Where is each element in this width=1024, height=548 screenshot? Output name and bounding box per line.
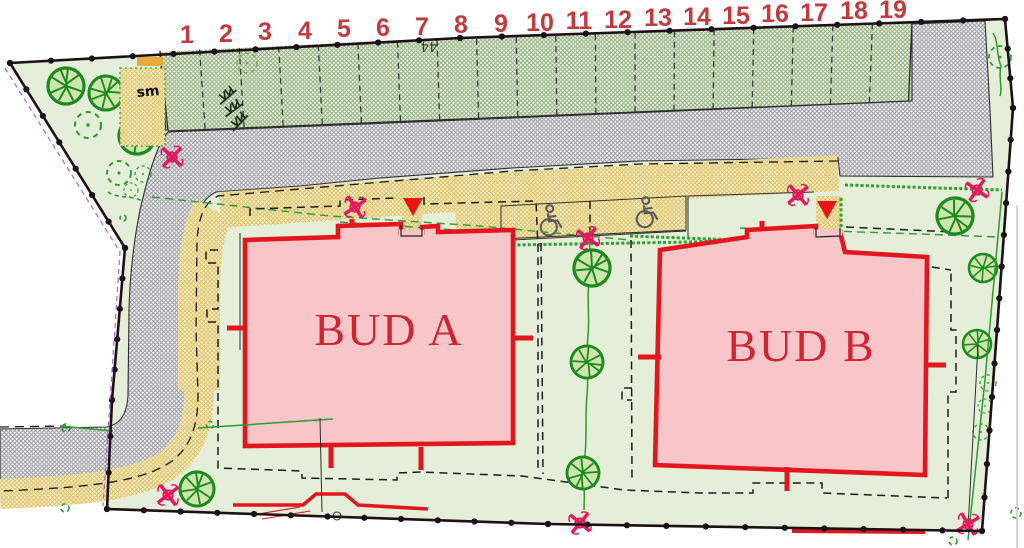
stall-number: 18 bbox=[840, 0, 868, 25]
stall-number: 4 bbox=[298, 17, 312, 45]
boundary-point bbox=[1005, 168, 1011, 174]
boundary-point bbox=[960, 17, 966, 23]
boundary-point bbox=[117, 306, 123, 312]
boundary-point bbox=[48, 58, 54, 64]
building-a: BUD A bbox=[227, 219, 533, 470]
boundary-point bbox=[981, 494, 987, 500]
boundary-point bbox=[104, 506, 110, 512]
boundary-point bbox=[119, 275, 125, 281]
boundary-point bbox=[324, 513, 330, 519]
boundary-point bbox=[984, 461, 990, 467]
boundary-point bbox=[1010, 105, 1016, 111]
boundary-point bbox=[122, 245, 128, 251]
stall-number: 11 bbox=[566, 7, 593, 35]
boundary-point bbox=[7, 60, 13, 66]
stall-number: 7 bbox=[415, 13, 429, 41]
boundary-point bbox=[792, 23, 798, 29]
stall-number: 9 bbox=[494, 10, 508, 38]
boundary-point bbox=[361, 515, 367, 521]
boundary-point bbox=[821, 525, 827, 531]
boundary-point bbox=[435, 517, 441, 523]
building-b: BUD B bbox=[638, 221, 946, 491]
stall-number: 8 bbox=[454, 11, 468, 39]
boundary-point bbox=[288, 512, 294, 518]
boundary-point bbox=[177, 508, 183, 514]
site-plan-canvas: BUD A BUD B bbox=[0, 0, 1024, 548]
boundary-point bbox=[171, 51, 177, 57]
boundary-point bbox=[106, 219, 112, 225]
boundary-point bbox=[861, 526, 867, 532]
boundary-point bbox=[1001, 232, 1007, 238]
boundary-point bbox=[584, 522, 590, 528]
boundary-point bbox=[918, 19, 924, 25]
stall-number: 5 bbox=[337, 15, 351, 43]
boundary-point bbox=[471, 518, 477, 524]
tree-icon bbox=[48, 68, 84, 104]
stall-number: 2 bbox=[219, 20, 233, 48]
stall-number: 16 bbox=[761, 0, 789, 28]
boundary-point bbox=[989, 394, 995, 400]
boundary-point bbox=[1007, 75, 1013, 81]
boundary-point bbox=[251, 511, 257, 517]
boundary-point bbox=[994, 327, 1000, 333]
stall-number: 10 bbox=[526, 9, 554, 37]
boundary-point bbox=[999, 264, 1005, 270]
boundary-point bbox=[1005, 46, 1011, 52]
boundary-point bbox=[23, 86, 29, 92]
boundary-point bbox=[986, 427, 992, 433]
stall-number: 13 bbox=[644, 4, 672, 32]
boundary-point bbox=[130, 53, 136, 59]
boundary-point bbox=[663, 523, 669, 529]
stall-number: 17 bbox=[800, 0, 828, 27]
boundary-point bbox=[211, 49, 217, 55]
boundary-point bbox=[89, 55, 95, 61]
building-b-label: BUD B bbox=[726, 320, 875, 371]
boundary-point bbox=[141, 507, 147, 513]
boundary-point bbox=[508, 520, 514, 526]
adjacent-parcel-label: 44 bbox=[421, 38, 438, 53]
boundary-point bbox=[106, 470, 112, 476]
sm-area: sm bbox=[120, 57, 165, 146]
boundary-point bbox=[114, 336, 120, 342]
boundary-point bbox=[56, 139, 62, 145]
boundary-point bbox=[214, 510, 220, 516]
boundary-point bbox=[89, 192, 95, 198]
boundary-point bbox=[782, 525, 788, 531]
boundary-point bbox=[750, 25, 756, 31]
boundary-point bbox=[703, 523, 709, 529]
boundary-point bbox=[73, 166, 79, 172]
boundary-point bbox=[624, 522, 630, 528]
site-plan-drawing: BUD A BUD B bbox=[0, 0, 1024, 548]
stall-number: 6 bbox=[376, 14, 390, 42]
stall-number: 14 bbox=[683, 3, 711, 31]
building-a-label: BUD A bbox=[314, 304, 463, 355]
boundary-point bbox=[1002, 16, 1008, 22]
boundary-point bbox=[252, 46, 258, 52]
stall-number: 19 bbox=[879, 0, 907, 24]
stall-number: 12 bbox=[604, 6, 632, 34]
boundary-point bbox=[900, 527, 906, 533]
boundary-point bbox=[1008, 137, 1014, 143]
boundary-point bbox=[1003, 200, 1009, 206]
stall-number: 1 bbox=[180, 21, 194, 49]
stall-number: 3 bbox=[258, 18, 272, 46]
boundary-point bbox=[398, 516, 404, 522]
boundary-point bbox=[991, 360, 997, 366]
sm-label: sm bbox=[136, 83, 160, 101]
boundary-point bbox=[939, 527, 945, 533]
stall-number: 15 bbox=[722, 2, 750, 30]
boundary-point bbox=[979, 528, 985, 534]
boundary-point bbox=[742, 524, 748, 530]
gate-marker bbox=[137, 57, 163, 66]
boundary-point bbox=[40, 113, 46, 119]
boundary-point bbox=[996, 295, 1002, 301]
boundary-point bbox=[545, 521, 551, 527]
